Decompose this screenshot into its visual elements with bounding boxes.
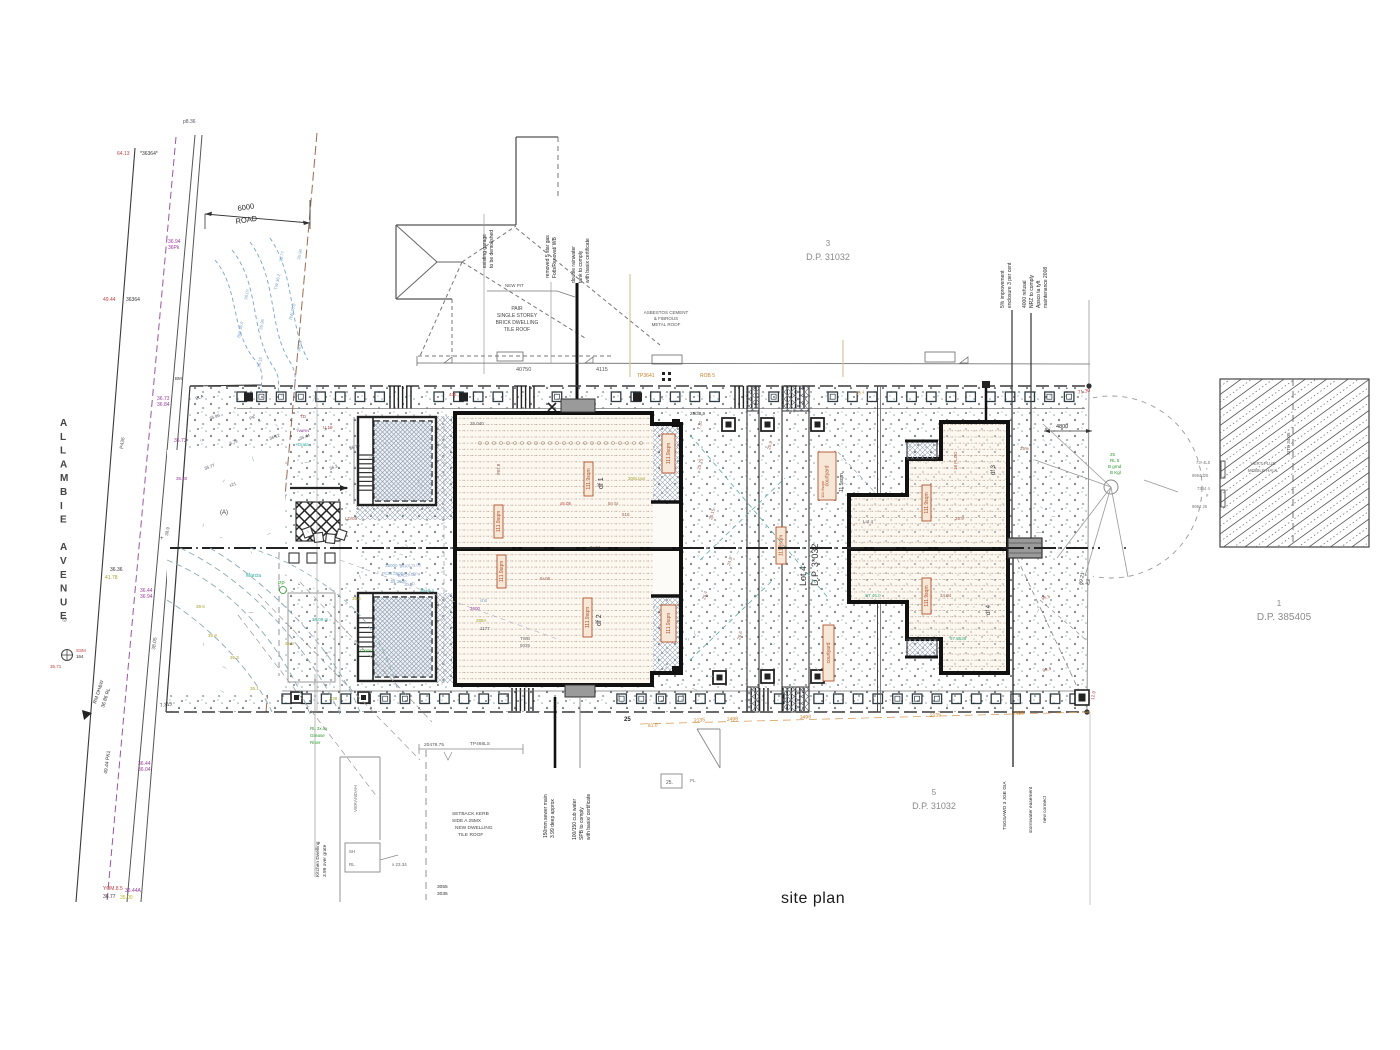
svg-text:35.1: 35.1: [250, 686, 259, 691]
svg-text:3035: 3035: [437, 891, 448, 897]
svg-text:36.73: 36.73: [174, 438, 187, 444]
svg-text:& FIBROUS: & FIBROUS: [654, 316, 678, 321]
svg-text:TP466LS: TP466LS: [470, 741, 490, 747]
svg-text:◎: ◎: [62, 617, 67, 623]
svg-text:ch0: ch0: [480, 598, 488, 603]
svg-text:Marcia: Marcia: [246, 573, 261, 579]
svg-text:NRZ to comply: NRZ to comply: [1029, 274, 1035, 308]
svg-text:2135: 2135: [694, 717, 706, 724]
svg-text:4000 refusal: 4000 refusal: [1022, 280, 1028, 308]
svg-text:SINGLE STOREY: SINGLE STOREY: [497, 313, 538, 319]
svg-text:with basix/ certificate: with basix/ certificate: [586, 794, 592, 840]
svg-text:courtyard: courtyard: [825, 465, 831, 486]
svg-text:4800: 4800: [1056, 424, 1068, 430]
svg-text:2135: 2135: [930, 712, 942, 719]
svg-text:TWB: TWB: [520, 636, 530, 641]
svg-text:LD/05: LD/05: [345, 516, 358, 521]
svg-text:3498: 3498: [800, 714, 812, 721]
svg-text:39.6: 39.6: [196, 604, 205, 609]
svg-text:D.P. 31032: D.P. 31032: [912, 801, 956, 811]
svg-text:existing garage: existing garage: [482, 234, 488, 268]
svg-text:MOBILE HAUL: MOBILE HAUL: [1248, 468, 1279, 473]
svg-text:ASBESTOS CEMENT: ASBESTOS CEMENT: [644, 310, 689, 315]
svg-text:METAL ROOF: METAL ROOF: [652, 322, 681, 327]
svg-text:40750: 40750: [516, 367, 531, 373]
svg-text:288A: 288A: [476, 618, 487, 623]
svg-text:L: L: [60, 446, 66, 457]
svg-text:site plan: site plan: [781, 890, 845, 907]
svg-text:+Grata: +Grata: [295, 442, 309, 447]
svg-text:ST 46.0: ST 46.0: [865, 593, 881, 598]
svg-text:111.9sqm: 111.9sqm: [924, 492, 930, 513]
svg-text:(A): (A): [220, 510, 228, 516]
svg-text:36.04: 36.04: [138, 767, 151, 773]
svg-text:B Kgl: B Kgl: [1110, 470, 1121, 475]
svg-text:TILE ROOF: TILE ROOF: [504, 327, 530, 333]
svg-text:1: 1: [1277, 598, 1282, 608]
svg-text:111.9sqm: 111.9sqm: [586, 468, 592, 489]
svg-text:U: U: [60, 597, 67, 608]
svg-text:L: L: [60, 432, 66, 443]
svg-text:Apsco ta tyft: Apsco ta tyft: [1036, 280, 1042, 308]
svg-text:Lot 4: Lot 4: [798, 566, 808, 586]
svg-text:36364: 36364: [126, 297, 140, 303]
svg-text:TILE ROOF: TILE ROOF: [458, 832, 483, 838]
svg-text:8694 25: 8694 25: [1192, 504, 1208, 509]
svg-text:2498: 2498: [727, 716, 739, 723]
svg-text:7344 4: 7344 4: [1197, 486, 1210, 491]
svg-text:111.9sqm: 111.9sqm: [924, 585, 930, 606]
svg-text:RL 3x.xx: RL 3x.xx: [310, 726, 328, 731]
svg-text:111.9sqm: 111.9sqm: [666, 443, 672, 464]
svg-text:5% improvement: 5% improvement: [1000, 270, 1006, 308]
svg-text:25/38.9: 25/38.9: [690, 411, 706, 416]
svg-text:BM: BM: [175, 376, 182, 381]
svg-text:TP3641: TP3641: [637, 373, 655, 379]
svg-text:25%: 25%: [1020, 446, 1029, 451]
svg-text:36.3: 36.3: [230, 655, 239, 660]
svg-text:111.9sqm: 111.9sqm: [666, 613, 672, 634]
svg-text:df 3: df 3: [991, 464, 997, 475]
svg-text:D.P. 31032: D.P. 31032: [806, 252, 850, 262]
svg-text:3: 3: [826, 239, 831, 248]
svg-text:435: 435: [449, 392, 457, 397]
svg-text:B grnd: B grnd: [1108, 464, 1122, 469]
svg-text:SH: SH: [349, 849, 355, 854]
svg-text:8694d25: 8694d25: [1192, 473, 1209, 478]
svg-text:25.040: 25.040: [470, 421, 484, 426]
svg-text:100/150 cub water: 100/150 cub water: [572, 799, 578, 840]
svg-text:25: 25: [624, 717, 631, 723]
svg-text:x38: x38: [330, 696, 338, 701]
svg-text:Gxxxr: Gxxxr: [360, 648, 372, 653]
svg-text:111.9sqm: 111.9sqm: [499, 561, 505, 582]
svg-text:35.00: 35.00: [120, 895, 133, 901]
svg-text:TSGSAWO 3 JGE GIA: TSGSAWO 3 JGE GIA: [1002, 781, 1008, 830]
svg-text:E: E: [60, 515, 67, 526]
svg-text:36.9: 36.9: [285, 641, 294, 646]
svg-text:x5.05: x5.05: [560, 501, 572, 506]
svg-text:D.P. 3*032: D.P. 3*032: [810, 544, 820, 586]
svg-text:36.44A: 36.44A: [125, 888, 142, 894]
svg-text:SIDE A 25MX: SIDE A 25MX: [452, 818, 482, 824]
svg-text:p8.36: p8.36: [183, 119, 196, 125]
svg-text:with basix certificate: with basix certificate: [585, 238, 591, 283]
svg-text:35.6: 35.6: [352, 596, 361, 601]
svg-text:x 23.34: x 23.34: [392, 862, 407, 867]
svg-text:TD: TD: [300, 414, 307, 419]
svg-text:NEW PIT: NEW PIT: [505, 283, 524, 288]
svg-text:courtyard: courtyard: [826, 642, 832, 663]
svg-text:36.77: 36.77: [103, 894, 116, 900]
svg-text:JD JD: JD JD: [404, 581, 415, 587]
svg-text:A: A: [60, 459, 67, 470]
svg-text:35.80: 35.80: [176, 476, 188, 481]
svg-text:RL 5: RL 5: [1110, 458, 1120, 463]
svg-text:BRICK DWELLING: BRICK DWELLING: [496, 320, 539, 326]
svg-text:111.9sqm: 111.9sqm: [585, 607, 591, 628]
svg-text:73+4L5: 73+4L5: [1196, 460, 1211, 465]
svg-text:4115: 4115: [596, 367, 608, 373]
svg-text:34.04: 34.04: [940, 593, 952, 598]
svg-text:M: M: [60, 473, 68, 484]
svg-text:PP: PP: [278, 581, 285, 587]
svg-text:N: N: [60, 584, 67, 595]
svg-text:ROB 5: ROB 5: [700, 373, 715, 379]
svg-text:df 1: df 1: [598, 477, 605, 489]
svg-text:U 19: U 19: [323, 425, 333, 430]
svg-text:111.9sqm: 111.9sqm: [820, 480, 825, 498]
svg-text:81.0: 81.0: [648, 722, 658, 729]
svg-text:Grease: Grease: [310, 733, 325, 738]
svg-text:B: B: [60, 487, 67, 498]
svg-text:V: V: [60, 556, 67, 567]
svg-text:3.99 deep approx: 3.99 deep approx: [550, 799, 556, 838]
svg-text:VERT-PLUS: VERT-PLUS: [1251, 461, 1276, 466]
svg-text:enclosure 3 per cent: enclosure 3 per cent: [1007, 262, 1013, 308]
svg-text:97.8536: 97.8536: [950, 636, 967, 641]
svg-text:300L/avr: 300L/avr: [628, 476, 646, 481]
svg-text:SPB to comply: SPB to comply: [579, 807, 585, 840]
svg-text:49.44: 49.44: [103, 297, 116, 303]
svg-text:36.71: 36.71: [50, 664, 62, 669]
svg-text:38.08 m: 38.08 m: [312, 617, 329, 622]
svg-text:2498: 2498: [1013, 710, 1025, 717]
svg-text:VERANDAH: VERANDAH: [353, 785, 359, 812]
svg-text:1177: 1177: [480, 626, 490, 631]
svg-text:new connect: new connect: [1042, 795, 1048, 823]
svg-text:36.94: 36.94: [140, 594, 153, 600]
svg-text:SSM: SSM: [76, 648, 86, 653]
svg-text:41.78: 41.78: [105, 575, 118, 581]
svg-text:35.8: 35.8: [208, 633, 217, 638]
svg-text:5+06: 5+06: [540, 576, 551, 581]
svg-text:NEW DWELLING: NEW DWELLING: [455, 825, 493, 831]
svg-text:5: 5: [932, 788, 937, 797]
svg-text:df 4: df 4: [986, 604, 992, 615]
svg-text:36+0.4: 36+0.4: [420, 588, 434, 593]
svg-text:25.: 25.: [666, 780, 673, 786]
svg-text:removed 5 star gas: removed 5 star gas: [545, 235, 551, 278]
svg-text:#87.8: #87.8: [496, 463, 501, 475]
svg-text:5n 5r: 5n 5r: [608, 501, 619, 506]
svg-text:PL: PL: [690, 778, 696, 783]
svg-text:RL: RL: [349, 862, 355, 867]
svg-text:5035: 5035: [520, 643, 531, 648]
svg-text:515: 515: [622, 512, 630, 517]
svg-text:df 2: df 2: [596, 614, 603, 626]
svg-text:3.99 over grate: 3.99 over grate: [322, 844, 328, 877]
svg-text:25: 25: [1110, 452, 1116, 457]
svg-text:I: I: [60, 501, 63, 512]
svg-text:36.36: 36.36: [110, 567, 123, 573]
svg-text:PAIR: PAIR: [511, 306, 523, 312]
svg-text:D.P. 385405: D.P. 385405: [1257, 612, 1312, 623]
svg-text:+: +: [160, 536, 164, 542]
svg-text:36.84: 36.84: [157, 402, 170, 408]
svg-text:36Pk: 36Pk: [168, 245, 180, 251]
svg-text:Lot 4: Lot 4: [863, 519, 874, 524]
svg-text:E2: E2: [1085, 578, 1092, 585]
svg-text:150mm sewer main: 150mm sewer main: [543, 794, 549, 838]
svg-text:164: 164: [76, 654, 84, 659]
svg-text:Fotb/Renovat/ WB: Fotb/Renovat/ WB: [552, 236, 558, 278]
svg-text:to be demolished: to be demolished: [489, 230, 495, 268]
svg-text:YOM.8.5: YOM.8.5: [103, 886, 123, 892]
svg-text:•: •: [1066, 386, 1068, 392]
svg-text:SITE 34.05: SITE 34.05: [1286, 432, 1291, 455]
svg-text:Riser: Riser: [310, 740, 321, 745]
svg-text:20478.75: 20478.75: [424, 742, 444, 748]
svg-text:3055: 3055: [437, 884, 448, 890]
svg-text:64.13: 64.13: [117, 151, 130, 157]
svg-text:111.9sqm: 111.9sqm: [496, 511, 502, 532]
svg-text:tank to comply: tank to comply: [578, 250, 584, 283]
svg-text:25.9: 25.9: [955, 516, 964, 521]
svg-text:maintenance 2008: maintenance 2008: [1043, 267, 1049, 308]
svg-text:A: A: [60, 418, 67, 429]
svg-text:stormwater easement: stormwater easement: [1028, 786, 1034, 833]
svg-text:E: E: [60, 570, 67, 581]
svg-text:*36364*: *36364*: [140, 151, 158, 157]
svg-text:Kitchen Dwelling: Kitchen Dwelling: [315, 841, 321, 877]
svg-text:18 PLOD: 18 PLOD: [953, 451, 958, 470]
svg-text:A: A: [60, 542, 67, 553]
svg-text:SETBACK KERB: SETBACK KERB: [452, 811, 489, 817]
svg-text:double rainwater: double rainwater: [571, 246, 577, 283]
